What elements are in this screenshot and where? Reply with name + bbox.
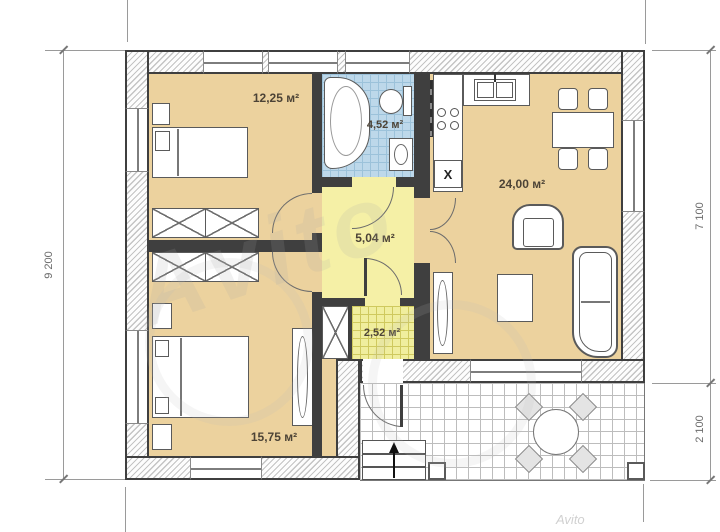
sofa-cushion-line	[581, 301, 610, 303]
stove-burner	[437, 108, 446, 117]
dining-chair	[588, 88, 608, 110]
pillow	[155, 340, 169, 357]
wardrobe-section	[152, 208, 206, 238]
door-opening	[312, 252, 322, 292]
extension-line-bottom-left	[45, 479, 125, 480]
wardrobe-section	[205, 208, 259, 238]
room-label-hallway: 5,04 м²	[335, 231, 415, 245]
wall	[149, 240, 322, 252]
sink-bowl	[477, 82, 494, 98]
dining-chair	[558, 88, 578, 110]
dining-table	[552, 112, 614, 148]
patio-round-table	[533, 409, 579, 455]
dining-chair	[558, 148, 578, 170]
pillow	[155, 131, 170, 151]
extension-line-below-left	[125, 487, 126, 532]
blanket-fold-line	[177, 129, 179, 176]
toilet-tank	[403, 86, 412, 116]
stove-burner	[450, 108, 459, 117]
wardrobe-section	[205, 252, 259, 282]
toilet-bowl	[379, 89, 403, 114]
sink-bowl	[496, 82, 513, 98]
watermark-small-text: Avito	[556, 512, 585, 527]
window	[203, 50, 263, 74]
window	[345, 50, 410, 74]
door-opening	[312, 193, 322, 233]
window	[268, 50, 338, 74]
exterior-wall-right	[621, 50, 645, 383]
mirror-door-leaf	[297, 336, 308, 418]
window	[621, 120, 645, 212]
room-label-tambour: 2,52 м²	[342, 327, 422, 339]
door-leaf	[364, 258, 367, 296]
dining-chair	[588, 148, 608, 170]
terrace-column-left	[428, 462, 446, 480]
extension-line-top-left	[45, 50, 125, 51]
boiler-box: X	[434, 160, 462, 188]
pillow	[155, 397, 169, 414]
blanket-fold-line	[180, 338, 182, 416]
nightstand	[152, 303, 172, 329]
door-leaf	[400, 385, 403, 427]
stove-burner	[437, 121, 446, 130]
stairs-direction-arrow	[393, 452, 395, 478]
door-opening	[414, 198, 430, 263]
floor-plan-canvas: 9 200 7 100 2 100	[0, 0, 720, 532]
dimension-label-right-upper: 7 100	[694, 186, 708, 246]
dimension-line-left	[63, 50, 64, 480]
wall	[414, 74, 430, 198]
wall	[414, 263, 430, 359]
room-label-bathroom: 4,52 м²	[345, 119, 425, 131]
door-opening	[365, 298, 400, 306]
nightstand	[152, 103, 170, 125]
door-opening	[352, 177, 396, 187]
wardrobe-section	[152, 252, 206, 282]
entrance-opening	[363, 359, 403, 383]
stove-burner	[450, 121, 459, 130]
dimension-label-right-lower: 2 100	[694, 399, 708, 459]
window	[190, 456, 262, 480]
window	[470, 359, 582, 383]
dimension-line-right	[710, 50, 711, 481]
sink-tap	[494, 74, 496, 82]
room-label-bedroom-top: 12,25 м²	[226, 91, 326, 105]
nightstand	[152, 424, 172, 450]
wall	[400, 298, 414, 306]
mirror-door-leaf	[437, 280, 448, 346]
dimension-label-left: 9 200	[43, 235, 57, 295]
extension-line-above-right-corner	[645, 0, 646, 44]
room-label-bedroom-bottom: 15,75 м²	[224, 430, 324, 444]
armchair-seat	[523, 218, 554, 247]
window	[125, 330, 149, 424]
extension-line-below-right	[643, 484, 644, 522]
wall	[322, 177, 352, 187]
coffee-table	[497, 274, 533, 322]
stairs-direction-arrowhead	[389, 442, 399, 453]
washing-machine-drum	[394, 144, 408, 165]
window	[125, 108, 149, 172]
extension-line-right-bottom	[650, 480, 716, 481]
wall	[322, 298, 365, 306]
extension-line-above-left-corner	[127, 0, 128, 42]
room-label-kitchen-living: 24,00 м²	[472, 177, 572, 191]
terrace-column-right	[627, 462, 645, 480]
